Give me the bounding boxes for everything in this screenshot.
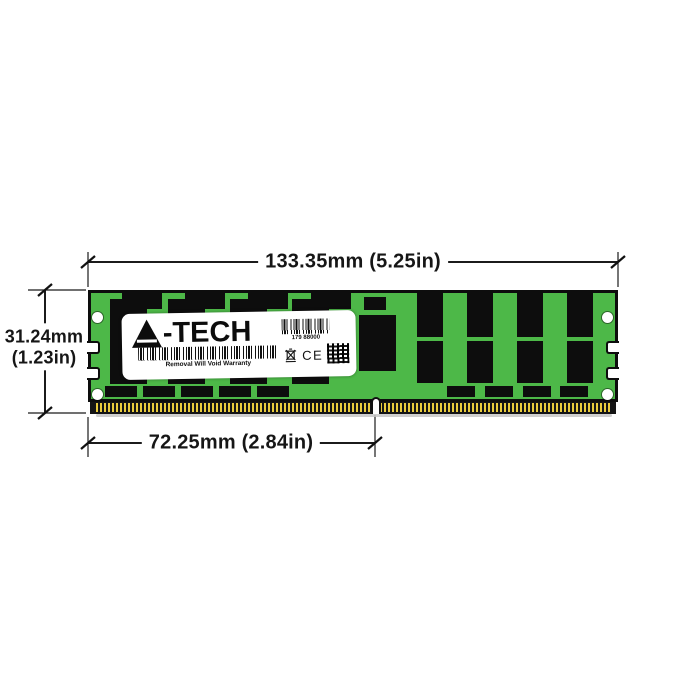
mounting-hole xyxy=(602,312,613,323)
memory-chip xyxy=(567,341,593,383)
serial-barcode-icon xyxy=(282,318,330,334)
memory-chip xyxy=(467,341,493,383)
memory-chip xyxy=(567,293,593,337)
edge-notch xyxy=(606,341,619,354)
memory-chip xyxy=(417,293,443,337)
memory-chip xyxy=(257,386,289,397)
warranty-barcode-icon xyxy=(138,345,278,360)
diagram-canvas: 133.35mm (5.25in) 31.24mm (1.23in) 72.25… xyxy=(0,0,700,700)
mounting-hole xyxy=(92,389,103,400)
spd-chip xyxy=(364,297,386,310)
memory-chip xyxy=(560,386,588,397)
pin-row xyxy=(90,402,616,414)
serial-number: 179 88000 xyxy=(282,334,330,341)
edge-notch xyxy=(606,367,619,380)
weee-bin-icon xyxy=(284,347,297,363)
ce-mark: CE xyxy=(302,348,323,363)
memory-chip xyxy=(517,293,543,337)
mounting-hole xyxy=(602,389,613,400)
height-dimension-in: (1.23in) xyxy=(5,347,83,368)
qr-code-icon xyxy=(327,343,349,363)
memory-chip xyxy=(105,386,137,397)
a-tech-triangle-icon xyxy=(132,319,162,348)
memory-chip xyxy=(219,386,251,397)
memory-chip xyxy=(143,386,175,397)
register-chip xyxy=(359,315,396,371)
memory-chip xyxy=(447,386,475,397)
height-dimension-label: 31.24mm (1.23in) xyxy=(3,323,85,370)
a-tech-logo: -TECH xyxy=(132,318,252,348)
edge-notch xyxy=(87,341,100,354)
contact-dimension-label: 72.25mm (2.84in) xyxy=(142,431,320,456)
memory-chip xyxy=(517,341,543,383)
pin-key-notch xyxy=(371,397,381,414)
edge-notch xyxy=(87,367,100,380)
memory-chip xyxy=(181,386,213,397)
memory-chip xyxy=(467,293,493,337)
memory-module: -TECH 179 88000 Removal Will Void Warran… xyxy=(88,290,618,402)
gold-pins xyxy=(96,403,610,412)
module-shadow xyxy=(96,414,612,417)
a-tech-logo-text: -TECH xyxy=(163,318,252,348)
product-label: -TECH 179 88000 Removal Will Void Warran… xyxy=(121,310,356,380)
height-dimension-mm: 31.24mm xyxy=(5,326,83,347)
width-dimension-label: 133.35mm (5.25in) xyxy=(258,250,448,275)
memory-chip xyxy=(485,386,513,397)
warranty-text: Removal Will Void Warranty xyxy=(132,359,284,369)
memory-chip xyxy=(523,386,551,397)
mounting-hole xyxy=(92,312,103,323)
memory-chip xyxy=(417,341,443,383)
